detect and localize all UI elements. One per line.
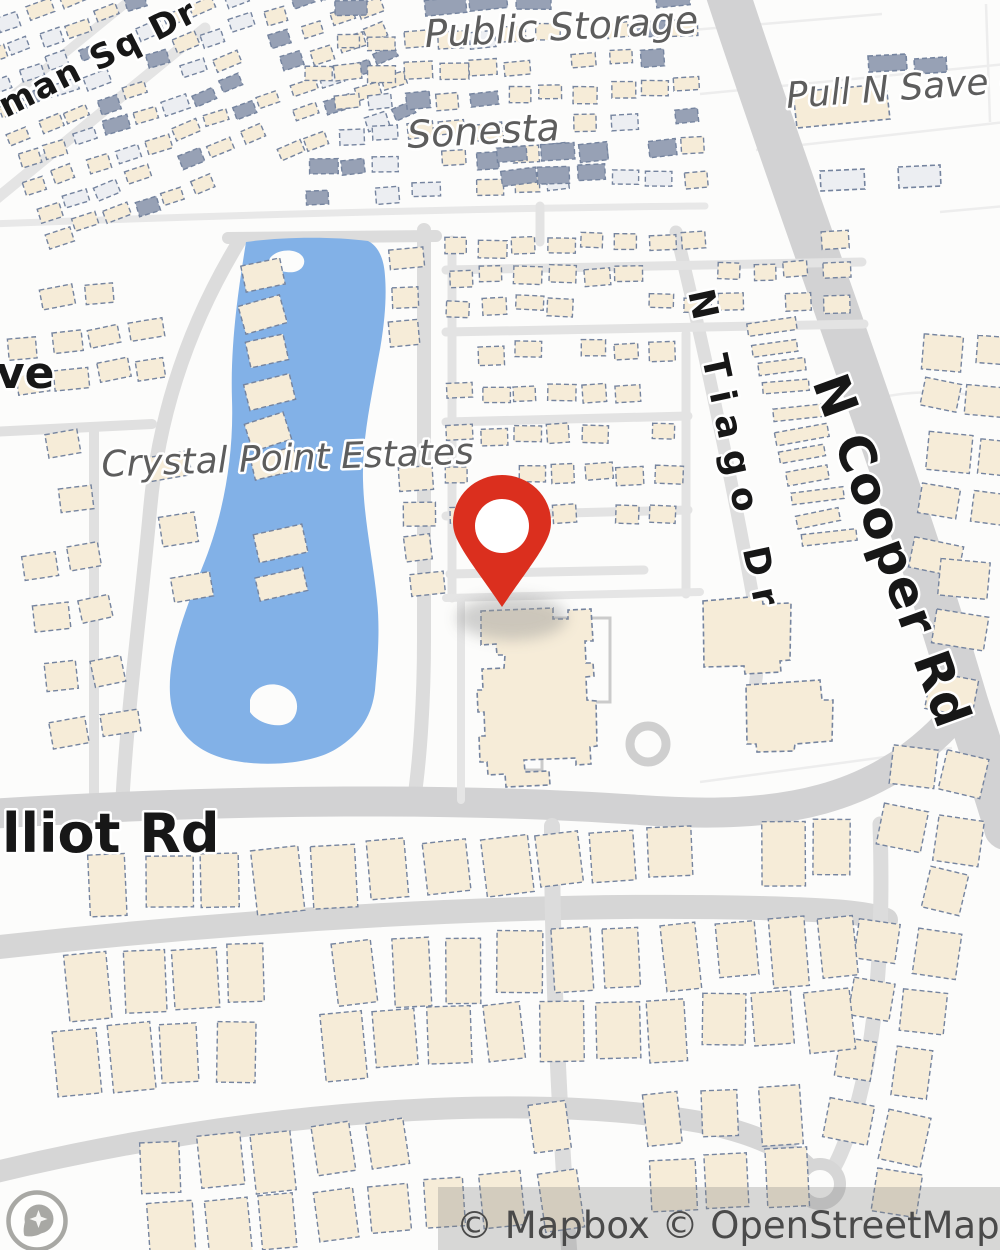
building [450, 270, 473, 287]
building [403, 534, 432, 562]
roundabout [630, 726, 666, 762]
building [642, 1091, 682, 1146]
building [649, 505, 676, 523]
building [514, 426, 542, 442]
building [341, 158, 365, 175]
building [427, 1006, 472, 1065]
building [496, 930, 542, 992]
building [64, 951, 112, 1021]
building [481, 834, 535, 897]
building [335, 0, 367, 15]
building [976, 335, 1000, 366]
street-label-ave-partial: ve [0, 348, 55, 399]
building [204, 1197, 252, 1250]
building [217, 1022, 257, 1083]
building [333, 63, 362, 81]
building [551, 927, 594, 993]
building [305, 66, 332, 81]
building [824, 295, 851, 313]
building [338, 34, 360, 47]
building [412, 182, 441, 197]
building [44, 660, 78, 691]
building [813, 819, 850, 875]
building [584, 268, 611, 287]
building [53, 367, 90, 391]
building [258, 1193, 297, 1250]
building [368, 93, 393, 110]
building [331, 939, 378, 1006]
building [715, 921, 759, 978]
building [596, 1002, 641, 1059]
building [483, 1002, 526, 1062]
building [511, 237, 535, 255]
building [478, 346, 505, 366]
building [32, 602, 71, 632]
building [614, 343, 639, 360]
building [309, 159, 338, 174]
pin-hole [475, 499, 529, 553]
building-footprint [746, 680, 833, 752]
building [616, 505, 640, 524]
building [539, 85, 562, 99]
building [372, 157, 398, 172]
building [673, 76, 699, 91]
building [52, 1028, 102, 1097]
building [365, 1118, 409, 1169]
building [422, 839, 471, 895]
building [197, 1132, 245, 1188]
building [718, 262, 741, 279]
map-viewport[interactable]: man Sq Dr ve N Tiago Dr N Cooper Rd llio… [0, 0, 1000, 1250]
building [546, 423, 569, 444]
building [540, 1001, 585, 1062]
building [551, 463, 574, 483]
building [135, 358, 165, 382]
building [227, 943, 264, 1002]
building [445, 237, 466, 253]
building [616, 466, 644, 485]
building [768, 916, 809, 988]
building [918, 483, 961, 519]
building [921, 334, 963, 372]
building [648, 138, 677, 157]
building [889, 745, 938, 789]
building [515, 341, 542, 357]
building [372, 125, 398, 140]
road [446, 416, 688, 422]
building [649, 341, 676, 361]
building [783, 260, 808, 277]
building [446, 938, 481, 1003]
building [675, 108, 699, 124]
building [646, 999, 688, 1063]
building [702, 993, 746, 1045]
building [389, 247, 425, 270]
pin-shadow [457, 596, 567, 640]
building [848, 977, 895, 1021]
building [339, 129, 364, 145]
building [548, 238, 576, 253]
building [107, 1021, 156, 1092]
building [681, 136, 705, 154]
building [446, 382, 472, 398]
building [823, 262, 851, 278]
building [58, 485, 94, 513]
map-canvas[interactable]: man Sq Dr ve N Tiago Dr N Cooper Rd llio… [0, 0, 1000, 1250]
building [436, 93, 459, 111]
building [368, 37, 396, 51]
building [582, 425, 609, 443]
building [311, 1121, 356, 1176]
building [250, 1131, 296, 1194]
building [970, 490, 1000, 526]
building [158, 512, 198, 547]
building [589, 830, 636, 883]
building [334, 94, 360, 110]
building [310, 844, 358, 909]
building [821, 230, 849, 249]
building [313, 1188, 359, 1242]
map-attribution[interactable]: © Mapbox © OpenStreetMap [456, 1204, 1000, 1247]
building [483, 387, 511, 402]
building [933, 815, 985, 867]
building [899, 989, 947, 1035]
building [368, 66, 396, 83]
building [477, 152, 500, 170]
building [854, 919, 900, 964]
building [938, 558, 991, 599]
building [655, 465, 684, 484]
building [375, 186, 400, 204]
building [320, 1011, 368, 1082]
building [912, 928, 962, 979]
building [368, 1183, 412, 1233]
building [571, 53, 596, 68]
building [403, 502, 435, 526]
building [123, 950, 167, 1014]
building [926, 431, 973, 473]
building [579, 142, 609, 163]
building [681, 231, 706, 249]
building [159, 1023, 199, 1083]
building-footprint [898, 165, 941, 188]
mapbox-logo[interactable] [9, 1193, 66, 1250]
building [440, 63, 469, 79]
building [52, 330, 83, 354]
building [612, 170, 638, 184]
building [388, 319, 420, 347]
building [404, 61, 433, 79]
building [611, 114, 638, 131]
building [548, 384, 577, 401]
building [645, 171, 672, 186]
building [641, 80, 668, 95]
building [552, 504, 576, 524]
building [649, 235, 676, 251]
building [762, 821, 806, 886]
building [612, 82, 636, 99]
building [509, 86, 531, 102]
building-footprint [820, 169, 865, 191]
building [581, 340, 605, 356]
building [684, 171, 708, 189]
building [549, 265, 576, 283]
building [660, 922, 702, 992]
building [649, 294, 674, 308]
building [817, 916, 858, 979]
building [513, 386, 536, 401]
building [478, 240, 507, 258]
building [392, 287, 419, 309]
building [585, 462, 614, 480]
building [647, 826, 693, 877]
building [392, 937, 432, 1007]
building [171, 948, 219, 1010]
building [410, 571, 446, 596]
building [577, 164, 605, 181]
attribution-bar: © Mapbox © OpenStreetMap [438, 1187, 1000, 1250]
building [516, 295, 544, 311]
building [406, 91, 431, 110]
building [964, 385, 1000, 418]
building [479, 266, 502, 282]
building [481, 428, 508, 446]
building [751, 990, 794, 1046]
building [519, 466, 545, 482]
building [482, 297, 507, 315]
building [891, 1046, 933, 1099]
building [537, 166, 569, 184]
building [574, 114, 597, 132]
building [535, 831, 584, 887]
building [306, 190, 329, 205]
building [652, 423, 674, 439]
building [513, 266, 542, 285]
building [147, 1200, 197, 1250]
building [366, 838, 409, 900]
street-label-elliot-rd: lliot Rd [2, 802, 219, 865]
building [754, 264, 776, 280]
building [85, 283, 114, 305]
building [876, 803, 928, 853]
building [610, 49, 633, 63]
building [701, 1090, 738, 1137]
building [615, 385, 641, 403]
building [477, 179, 504, 195]
building [446, 301, 469, 318]
road [228, 236, 436, 238]
building [614, 234, 636, 250]
building [504, 60, 531, 76]
building [581, 232, 603, 248]
building [614, 266, 642, 282]
building [547, 298, 573, 317]
building [468, 59, 497, 76]
building [251, 846, 305, 916]
building [803, 988, 855, 1054]
building [372, 1008, 418, 1067]
building [640, 49, 664, 68]
building [528, 1100, 571, 1153]
place-label-sonesta: Sonesta [406, 105, 561, 157]
building [22, 552, 59, 581]
building [573, 87, 597, 104]
building [582, 383, 607, 403]
building [140, 1141, 181, 1193]
building [759, 1085, 804, 1147]
building [785, 293, 811, 312]
building [602, 927, 640, 988]
building [977, 439, 1000, 477]
